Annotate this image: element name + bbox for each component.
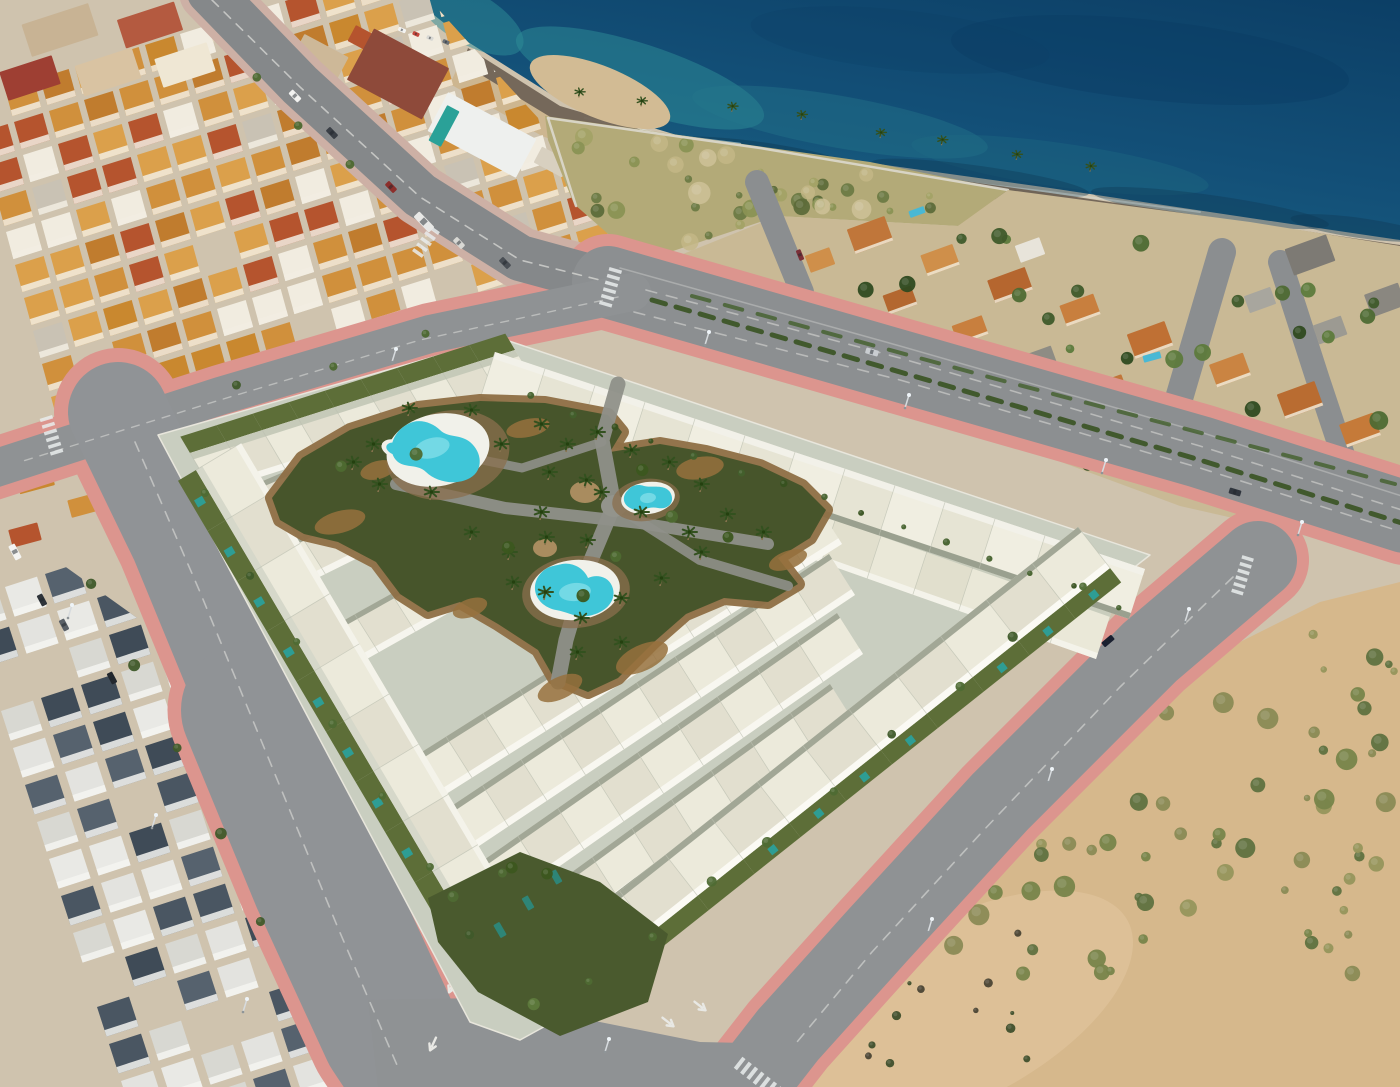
screenshot-aerial-development [0,0,1400,1087]
aerial-photo-svg [0,0,1400,1087]
